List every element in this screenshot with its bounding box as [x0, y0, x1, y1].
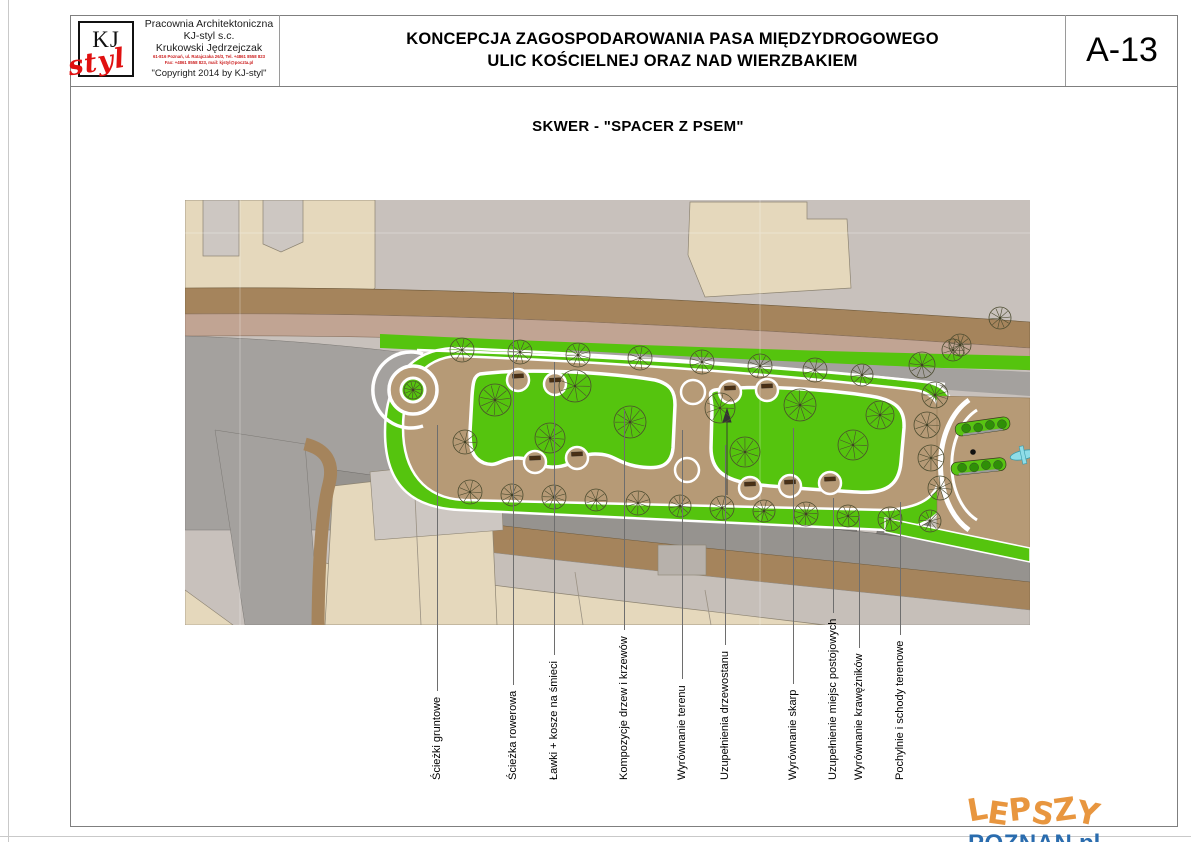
bench-symbol: [761, 384, 772, 388]
site-plan-drawing: [185, 200, 1030, 625]
logo-styl-text: styl: [66, 43, 128, 83]
company-name-line2: KJ-styl s.c.: [142, 30, 276, 42]
bench-symbol: [824, 477, 835, 481]
bench-symbol: [529, 456, 540, 460]
lawn-east: [710, 388, 904, 493]
watermark-word1: LEPSZY: [968, 809, 1099, 826]
watermark-letter: Y: [1073, 794, 1102, 834]
sheet-number: A-13: [1066, 15, 1178, 86]
company-address-line2: Fax: +4861 8558 823, mail: kjstyl@poczta…: [142, 60, 276, 66]
kj-styl-logo: KJ styl: [78, 21, 134, 77]
drawing-sheet: KJ styl Pracownia Architektoniczna KJ-st…: [0, 0, 1191, 842]
building-small-gray: [658, 545, 706, 575]
bench-symbol: [571, 452, 582, 456]
bench-symbol: [724, 386, 735, 390]
bench-symbol: [744, 482, 755, 486]
project-title-line1: KONCEPCJA ZAGOSPODAROWANIA PASA MIĘDZYDR…: [280, 29, 1065, 50]
project-title-line2: ULIC KOŚCIELNEJ ORAZ NAD WIERZBAKIEM: [280, 51, 1065, 72]
copyright-text: "Copyright 2014 by KJ-styl": [142, 69, 276, 80]
company-name-line1: Pracownia Architektoniczna: [142, 18, 276, 30]
title-block: KJ styl Pracownia Architektoniczna KJ-st…: [70, 15, 1178, 87]
plaza-dot: [970, 449, 976, 455]
bench-symbol: [549, 378, 560, 383]
logo-cell: KJ styl Pracownia Architektoniczna KJ-st…: [70, 15, 280, 86]
bench-symbol: [784, 480, 795, 484]
drawing-subtitle: SKWER - "SPACER Z PSEM": [70, 118, 1178, 135]
firm-info: Pracownia Architektoniczna KJ-styl s.c. …: [142, 18, 276, 80]
company-address-line1: 61-816 Poznań, ul. Ratajczaka 26/3, Tel.…: [142, 54, 276, 60]
company-name-line3: Krukowski Jędrzejczak: [142, 42, 276, 54]
bench-symbol: [512, 374, 523, 379]
page-edge-left: [8, 0, 9, 842]
watermark-lepszypoznan: LEPSZYPOZNAN.pl: [968, 794, 1183, 840]
project-title-cell: KONCEPCJA ZAGOSPODAROWANIA PASA MIĘDZYDR…: [280, 15, 1066, 86]
watermark-word2: POZNAN: [968, 830, 1072, 842]
